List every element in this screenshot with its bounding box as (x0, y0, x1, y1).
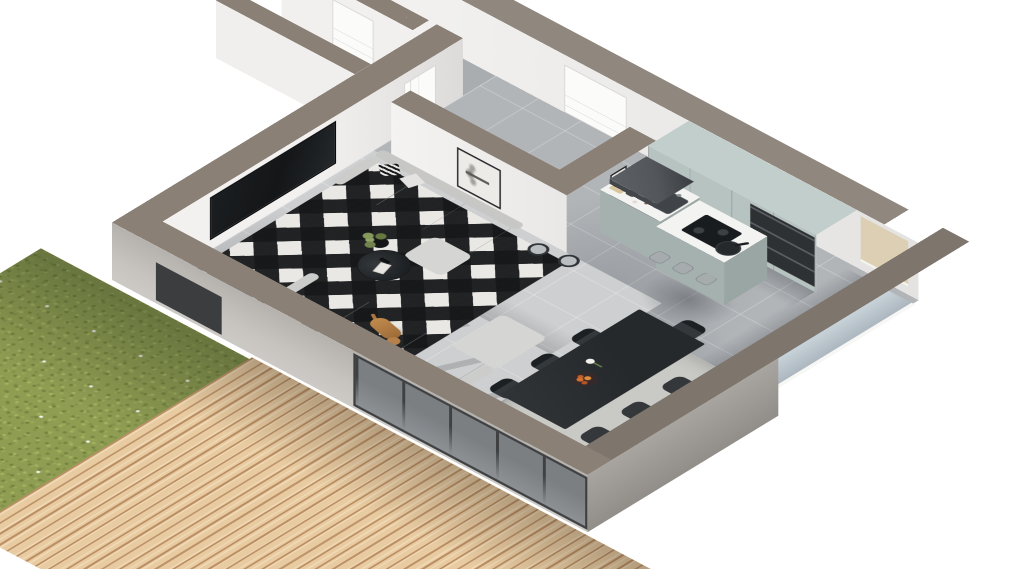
tree-branches (463, 158, 479, 190)
render-viewport (0, 0, 1024, 569)
fruit-bowl (568, 369, 603, 389)
book-stack (373, 262, 392, 274)
throw-pillow-patterned (379, 164, 401, 177)
house-cutaway-scene (112, 47, 969, 533)
